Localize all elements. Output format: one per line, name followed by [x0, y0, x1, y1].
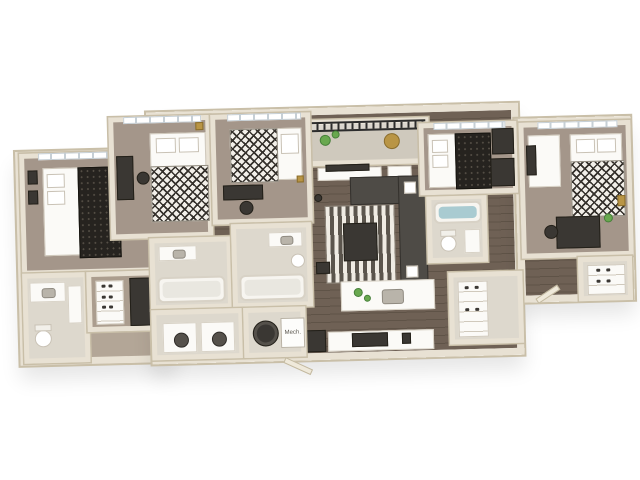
bed — [229, 127, 302, 181]
island-sink — [382, 289, 404, 305]
bedroom2-window — [123, 115, 201, 124]
bedroom-5 — [518, 120, 634, 259]
closet-5 — [578, 256, 633, 301]
vanity-sink — [268, 231, 302, 247]
island-plant — [354, 288, 363, 297]
bathroom-2 — [149, 236, 233, 310]
bed — [150, 132, 208, 219]
mech-label: Mech. — [280, 317, 305, 348]
tv — [325, 164, 369, 172]
wall-art — [28, 190, 38, 204]
desk-chair — [239, 201, 253, 215]
bedroom-2 — [108, 115, 213, 240]
island-plant — [364, 295, 371, 302]
throw-pillow — [406, 265, 418, 277]
dryer — [200, 321, 235, 352]
desk — [490, 158, 515, 187]
desk — [556, 216, 601, 249]
kitchen-island — [340, 279, 435, 311]
bathtub — [239, 273, 306, 301]
laundry — [151, 308, 244, 360]
toilet-tank — [440, 229, 456, 236]
toilet — [35, 330, 52, 347]
bathroom-3 — [231, 222, 313, 308]
lamp — [297, 175, 304, 182]
pantry — [448, 271, 524, 345]
lamp — [195, 122, 203, 130]
vanity-sink — [158, 245, 196, 261]
shoe-shelf — [587, 264, 626, 295]
living-room — [311, 163, 430, 290]
toilet-tank — [34, 324, 51, 331]
bedroom-3 — [210, 112, 313, 225]
small-appliance — [402, 333, 411, 344]
floorplan: Mech. — [0, 0, 640, 480]
bed — [428, 133, 489, 189]
range-stove — [352, 332, 388, 347]
bathroom-1 — [22, 272, 90, 364]
floor-lamp — [314, 194, 322, 202]
desk-chair — [137, 171, 150, 184]
bathtub — [157, 275, 226, 303]
side-table — [316, 262, 330, 274]
vanity-sink — [29, 282, 66, 303]
washer — [162, 322, 197, 353]
balcony-plant — [320, 135, 331, 146]
bed — [570, 133, 624, 214]
desk — [116, 156, 134, 200]
bedroom-4 — [418, 121, 518, 196]
shoe-shelf — [95, 280, 124, 325]
desk-plant — [604, 213, 613, 222]
bedroom5-window — [537, 120, 617, 129]
wall-art — [617, 195, 625, 206]
wall-art — [27, 170, 37, 184]
tv — [526, 145, 537, 175]
bed — [42, 166, 118, 256]
balcony — [306, 117, 429, 166]
bathtub — [433, 201, 482, 224]
balcony-table — [384, 133, 400, 149]
balcony-plant — [332, 130, 340, 138]
refrigerator — [306, 330, 327, 353]
pantry-shelves — [458, 281, 489, 338]
desk — [223, 184, 263, 200]
mech-closet: Mech. — [243, 306, 306, 358]
coffee-table — [343, 222, 378, 261]
vanity-sink — [464, 229, 481, 253]
toilet — [291, 253, 305, 267]
bedroom3-window — [227, 112, 301, 121]
floorplan-canvas: Mech. — [0, 0, 640, 480]
balcony-railing — [309, 119, 425, 132]
toilet — [440, 235, 456, 251]
bathroom-4 — [426, 194, 488, 264]
water-heater — [252, 320, 279, 347]
kitchen — [306, 325, 435, 356]
bath-shelf — [67, 285, 82, 323]
throw-pillow — [404, 181, 416, 193]
wardrobe — [492, 128, 515, 155]
